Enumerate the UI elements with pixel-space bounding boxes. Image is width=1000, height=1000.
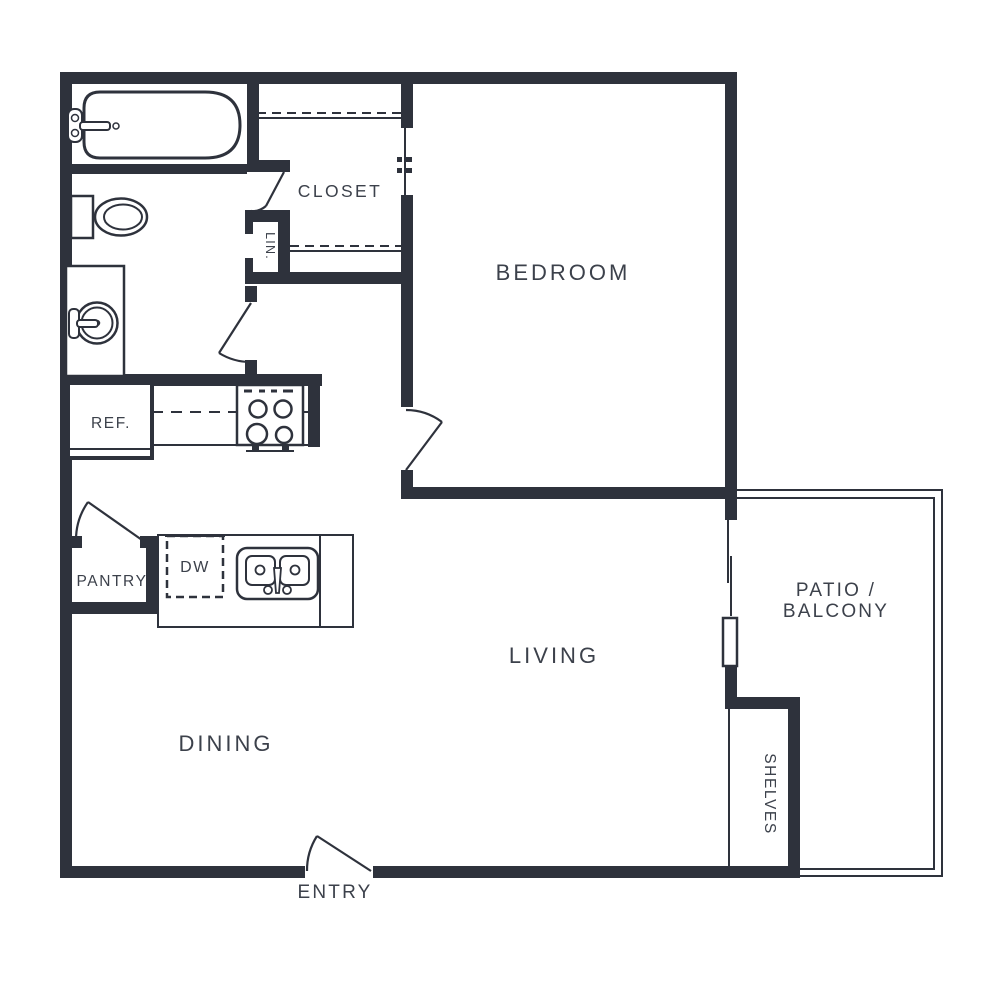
- wall-outer-top: [60, 72, 737, 84]
- sink-knob-right: [283, 586, 291, 594]
- stove-burner-2: [275, 401, 292, 418]
- sink-knob-left: [264, 586, 272, 594]
- closet-door-tick-2: [406, 157, 412, 162]
- pantry-door-arc: [76, 502, 88, 540]
- wall-bedroom-left-mid: [401, 195, 413, 407]
- bathroom-door-leaf: [219, 303, 251, 353]
- wall-outer-bottom-right: [373, 866, 800, 878]
- sink-drain-right: [291, 566, 300, 575]
- wall-below-tub: [72, 164, 247, 174]
- patio-label-line1: PATIO /: [796, 580, 876, 601]
- bedroom-door-leaf: [406, 422, 442, 470]
- wall-tub-side: [247, 84, 259, 172]
- sink-drain-left: [256, 566, 265, 575]
- wall-linen-jamb-top: [245, 210, 253, 234]
- pantry-label: PANTRY: [76, 573, 147, 590]
- closet-label: CLOSET: [298, 181, 382, 201]
- stove-burner-4: [276, 427, 292, 443]
- wall-pantry-bottom: [60, 602, 158, 614]
- dishwasher-label: DW: [180, 559, 210, 576]
- kitchen-upper-counter: REF.: [68, 383, 308, 458]
- wall-bedroom-right: [725, 72, 737, 520]
- closet-door-tick-3: [397, 168, 402, 173]
- entry-door-leaf: [317, 836, 371, 871]
- stove-burner-1: [250, 401, 267, 418]
- stove-burner-3: [247, 424, 267, 444]
- bathtub-knob-2: [72, 130, 79, 137]
- bathroom-faucet-handle: [77, 320, 98, 327]
- living-label: LIVING: [509, 643, 599, 668]
- stove-foot-right: [282, 445, 289, 451]
- floor-plan-page: REF. DW: [0, 0, 1000, 1000]
- bathtub-knob-1: [72, 115, 79, 122]
- stove-foot-left: [252, 445, 259, 451]
- closet-door-tick-4: [406, 168, 412, 173]
- floor-plan-drawing: REF. DW: [0, 0, 1000, 1000]
- bedroom-label: BEDROOM: [496, 260, 631, 285]
- patio-label-line2: BALCONY: [783, 601, 889, 622]
- bathtub-drain: [113, 123, 119, 129]
- wall-bedroom-left-upper: [401, 84, 413, 128]
- wall-kitchen-stub: [308, 374, 320, 447]
- wall-patio-door-stub: [725, 665, 737, 702]
- wall-linen-post: [245, 286, 257, 302]
- walls: [60, 72, 800, 878]
- pantry-door-leaf: [88, 502, 142, 540]
- wall-bedroom-bottom: [401, 487, 737, 499]
- wall-outer-left: [60, 72, 72, 878]
- bedroom-door-arc: [406, 410, 442, 422]
- bathroom-fixtures: [66, 92, 240, 376]
- closet-door-tick-1: [397, 157, 402, 162]
- kitchen-lower-counter: DW: [158, 535, 353, 627]
- entry-label: ENTRY: [297, 882, 372, 903]
- sink-faucet: [274, 568, 281, 593]
- entry-door-arc: [307, 836, 317, 871]
- wall-shelves-right: [788, 697, 800, 878]
- wall-hall-top: [245, 272, 413, 284]
- wall-closet-door-stub: [247, 160, 290, 172]
- wall-outer-bottom-left: [60, 866, 305, 878]
- toilet-tank: [71, 196, 93, 238]
- closet-door-leaf: [266, 172, 284, 206]
- bathtub-spout: [80, 122, 110, 130]
- toilet-bowl-inner: [104, 205, 142, 230]
- shelves-label: SHELVES: [761, 753, 778, 835]
- patio-door-panel: [723, 618, 737, 666]
- linen-closet-label: LIN.: [263, 232, 277, 260]
- dining-label: DINING: [179, 731, 274, 756]
- refrigerator-label: REF.: [91, 415, 131, 432]
